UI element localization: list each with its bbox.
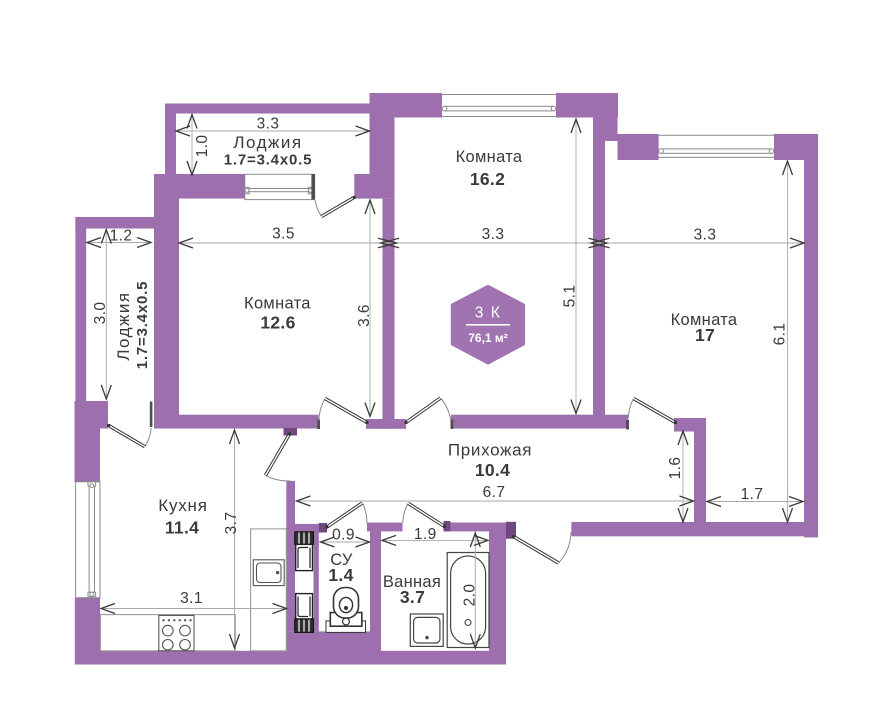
svg-text:0.9: 0.9 — [332, 527, 355, 544]
svg-text:3.3: 3.3 — [257, 116, 280, 133]
svg-text:1.9: 1.9 — [414, 526, 437, 543]
svg-text:3.5: 3.5 — [272, 226, 295, 243]
svg-text:76,1 м²: 76,1 м² — [468, 331, 508, 345]
svg-text:11.4: 11.4 — [165, 518, 199, 538]
svg-text:Кухня: Кухня — [158, 496, 208, 515]
svg-text:16.2: 16.2 — [470, 169, 505, 189]
svg-text:Лоджия: Лоджия — [114, 291, 133, 360]
svg-text:1.7: 1.7 — [741, 486, 764, 503]
svg-text:1.4: 1.4 — [328, 565, 353, 585]
svg-text:3.7: 3.7 — [223, 512, 240, 535]
svg-text:1.0: 1.0 — [194, 135, 211, 158]
svg-text:Лоджия: Лоджия — [233, 133, 302, 152]
svg-text:1.6: 1.6 — [667, 457, 684, 480]
svg-text:5.1: 5.1 — [562, 285, 579, 308]
svg-text:3.7: 3.7 — [400, 587, 425, 607]
svg-text:Комната: Комната — [244, 295, 311, 313]
svg-text:12.6: 12.6 — [260, 313, 295, 333]
svg-text:1.7=3.4x0.5: 1.7=3.4x0.5 — [134, 281, 151, 369]
svg-text:6.1: 6.1 — [772, 323, 789, 346]
svg-text:3.6: 3.6 — [356, 304, 373, 327]
svg-text:Комната: Комната — [456, 148, 523, 166]
svg-text:10.4: 10.4 — [475, 460, 510, 480]
svg-text:17: 17 — [695, 325, 715, 345]
svg-text:2.0: 2.0 — [462, 584, 479, 607]
svg-text:6.7: 6.7 — [483, 484, 506, 501]
svg-text:3.1: 3.1 — [180, 590, 203, 607]
svg-text:3.0: 3.0 — [92, 302, 109, 325]
svg-text:Прихожая: Прихожая — [448, 441, 532, 460]
svg-text:1.2: 1.2 — [110, 228, 133, 245]
svg-text:1.7=3.4x0.5: 1.7=3.4x0.5 — [224, 152, 312, 169]
svg-text:3.3: 3.3 — [694, 227, 717, 244]
svg-text:3.3: 3.3 — [482, 226, 505, 243]
svg-text:3 К: 3 К — [475, 305, 501, 322]
